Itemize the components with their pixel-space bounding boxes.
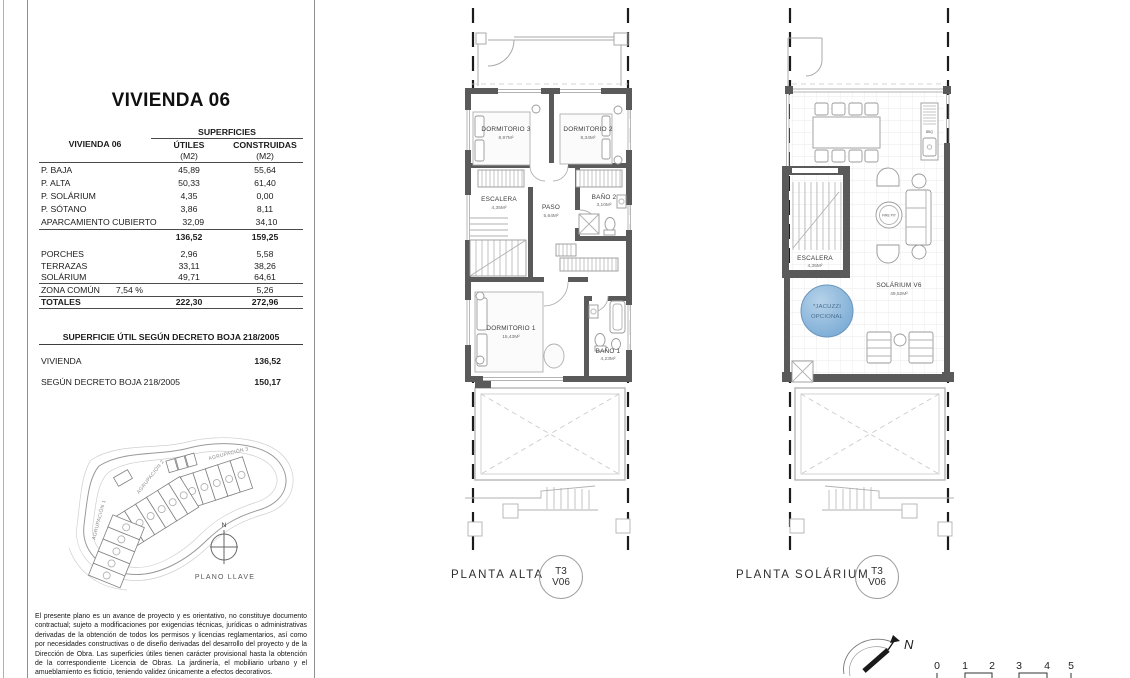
table-row: P. SOLÁRIUM4,350,00: [39, 189, 303, 202]
svg-text:3: 3: [1016, 660, 1022, 672]
room-label-solarium: SOLÁRIUM V6: [876, 280, 921, 289]
bbq-label: BBQ: [926, 130, 934, 134]
fire-pit-label: FIRE PIT: [882, 214, 896, 218]
table-row: PORCHES2,965,58: [39, 248, 303, 260]
badge-unit: V06: [552, 577, 570, 588]
room-label-bano1: BAÑO 1: [596, 346, 621, 355]
room-area-dormitorio2: 8,34M²: [581, 135, 596, 141]
surface-table: VIVIENDA 06 SUPERFICIES ÚTILES CONSTRUID…: [39, 127, 303, 309]
col-construidas: CONSTRUIDAS: [227, 140, 303, 150]
totales-row: TOTALES 222,30 272,96: [39, 296, 303, 309]
stair-landing: [792, 168, 838, 173]
page-edge-line: [3, 0, 4, 678]
badge-unit: V06: [868, 577, 886, 588]
svg-text:1: 1: [962, 660, 968, 672]
room-area-escalera: 4,35M²: [492, 205, 507, 211]
room-area-dormitorio1: 15,43M²: [502, 334, 520, 340]
planta-alta-caption: PLANTA ALTA: [451, 569, 544, 581]
scale-bar: 0 1 2 3 4 5: [934, 660, 1074, 678]
site-compass-icon: [210, 530, 238, 564]
subtotal-row: 136,52159,25: [39, 229, 303, 243]
plano-llave-caption: PLANO LLAVE: [195, 574, 255, 581]
col-utiles: ÚTILES: [151, 140, 227, 150]
room-label-bano2: BAÑO 2: [592, 192, 617, 201]
planta-alta-drawing: DORMITORIO 3 8,97M² DORMITORIO 2 8,34M² …: [448, 0, 652, 592]
svg-text:0: 0: [934, 660, 940, 672]
table-row: P. ALTA50,3361,40: [39, 176, 303, 189]
badge-type: T3: [871, 566, 883, 577]
site-north-label: N: [222, 522, 227, 529]
planta-alta-type-badge: T3 V06: [539, 555, 583, 599]
north-label: N: [904, 637, 914, 652]
porch-outline: [476, 33, 628, 86]
boja-row: VIVIENDA136,52: [39, 356, 303, 366]
room-area-bano2: 3,10M²: [597, 202, 612, 208]
plan-sheet: VIVIENDA 06 VIVIENDA 06 SUPERFICIES ÚTIL…: [0, 0, 1130, 678]
room-label-escalera: ESCALERA: [481, 196, 517, 203]
room-label-dormitorio2: DORMITORIO 2: [563, 126, 612, 133]
room-label-escalera: ESCALERA: [797, 255, 833, 262]
site-key-plan: AGRUPACIÓN 3 AGRUPACIÓN 2 AGRUPACIÓN 1 N…: [39, 430, 309, 595]
group-header: SUPERFICIES: [151, 127, 303, 139]
room-label-dormitorio3: DORMITORIO 3: [481, 126, 530, 133]
table-row: TERRAZAS33,1138,26: [39, 260, 303, 272]
legal-disclaimer: El presente plano es un avance de proyec…: [35, 612, 307, 678]
site-misc-buildings: [114, 470, 133, 487]
room-label-paso: PASO: [542, 204, 560, 211]
roof-access-outline: [788, 38, 822, 88]
unit-label: (M2): [227, 151, 303, 161]
table-row: SOLÁRIUM49,7164,61: [39, 271, 303, 283]
planta-solarium-type-badge: T3 V06: [855, 555, 899, 599]
shower-tray: [792, 361, 813, 382]
exterior-stairs: [465, 486, 630, 536]
site-misc-buildings: [166, 453, 197, 473]
unit-label: (M2): [151, 151, 227, 161]
room-label-dormitorio1: DORMITORIO 1: [486, 325, 535, 332]
svg-text:2: 2: [989, 660, 995, 672]
table-row: P. SÓTANO3,868,11: [39, 203, 303, 216]
table-row: P. BAJA45,8955,64: [39, 163, 303, 176]
exterior-stairs: [790, 486, 954, 536]
table-corner-label: VIVIENDA 06: [39, 127, 151, 161]
svg-text:5: 5: [1068, 660, 1074, 672]
room-area-bano1: 4,23M²: [601, 356, 616, 362]
room-area-solarium: 49,52M²: [890, 291, 908, 297]
jacuzzi-label-line1: *JACUZZI: [813, 304, 841, 310]
boja-row: SEGÚN DECRETO BOJA 218/2005150,17: [39, 377, 303, 387]
table-row: APARCAMIENTO CUBIERTO32,0934,10: [39, 216, 303, 229]
table-header: VIVIENDA 06 SUPERFICIES ÚTILES CONSTRUID…: [39, 127, 303, 163]
boja-header: SUPERFICIE ÚTIL SEGÚN DECRETO BOJA 218/2…: [39, 332, 303, 345]
info-panel: VIVIENDA 06 VIVIENDA 06 SUPERFICIES ÚTIL…: [27, 0, 315, 678]
planta-solarium-drawing: ESCALERA 4,35M² BBQ FIRE PIT *JACU: [768, 0, 972, 592]
svg-text:4: 4: [1044, 660, 1050, 672]
jacuzzi-label-line2: OPCIONAL: [811, 314, 844, 320]
terrace-below: [475, 381, 625, 480]
boja-table: SUPERFICIE ÚTIL SEGÚN DECRETO BOJA 218/2…: [39, 332, 303, 387]
zona-comun-row: ZONA COMÚN7,54 % 5,26: [39, 283, 303, 296]
room-area-escalera: 4,35M²: [808, 263, 823, 269]
page-title: VIVIENDA 06: [28, 90, 314, 112]
footer-compass-scale: N 0 1 2 3 4 5: [838, 628, 1130, 678]
jacuzzi-circle: [801, 285, 853, 337]
badge-type: T3: [555, 566, 567, 577]
north-arrow-icon: [844, 635, 900, 676]
terrace-below: [795, 388, 945, 480]
room-area-dormitorio3: 8,97M²: [499, 135, 514, 141]
planta-solarium-caption: PLANTA SOLÁRIUM: [736, 569, 870, 581]
room-area-paso: 5,64M²: [544, 213, 559, 219]
